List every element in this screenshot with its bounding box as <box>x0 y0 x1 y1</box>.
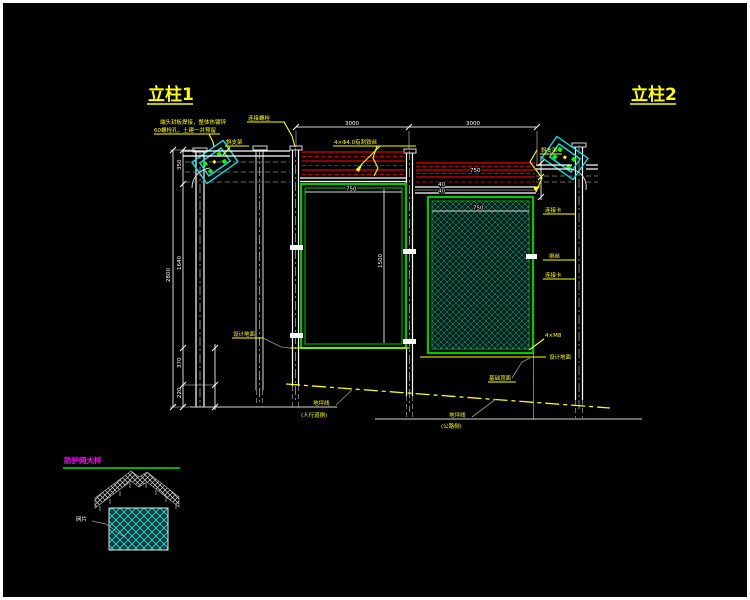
cad-canvas: 立柱1 立柱2 3000 3000 2800 350 1640 370 220 <box>0 0 750 600</box>
foundation-top-label: 基础顶面 <box>489 374 512 382</box>
install-note-line2: 60螺栓孔，土建一并预留 <box>154 126 216 134</box>
tie-callout-2: 绑丝 <box>549 252 561 260</box>
bolt-callout-label: 连接螺栓 <box>248 114 271 122</box>
dim-panel-w-left: 750 <box>346 187 357 193</box>
dim-span-left: 3000 <box>345 121 359 127</box>
dim-panel-h-left: 1500 <box>378 254 384 268</box>
design-ground-label-left: 设计地面 <box>233 330 256 338</box>
title-column-1: 立柱1 <box>148 84 194 105</box>
dim-seg-1: 350 <box>177 159 183 170</box>
barbed-wire-label: 4×Φ4.0有刺铁丝 <box>334 138 378 146</box>
title-column-2: 立柱2 <box>631 84 677 105</box>
tie-callout-4: 4×M8 <box>545 333 562 339</box>
mesh-sample-label: 网片 <box>76 515 87 523</box>
ground-side-label-left: (人行道侧) <box>301 411 327 419</box>
dim-rail-c: 40 <box>438 189 445 195</box>
dim-panel-w-right: 750 <box>473 206 484 212</box>
fence-detail-drawing: 立柱1 立柱2 3000 3000 2800 350 1640 370 220 <box>0 0 750 600</box>
ground-line-label-right: 地坪线 <box>449 411 466 419</box>
design-ground-label-right: 设计地面 <box>549 353 572 361</box>
dim-seg-4: 220 <box>177 387 183 398</box>
right-bracket-label: 斜支架 <box>541 146 558 154</box>
left-bracket-label: 斜支架 <box>226 138 243 146</box>
dim-rail-a: 750 <box>470 168 481 174</box>
dim-seg-2: 1640 <box>177 256 183 270</box>
install-note-line1: 端头封板焊接，整体热镀锌 <box>160 118 227 126</box>
ground-side-label-right: (公路侧) <box>441 422 462 430</box>
dim-span-right: 3000 <box>466 121 480 127</box>
dim-rail-b: 40 <box>438 182 445 188</box>
dim-total-height: 2800 <box>166 268 172 282</box>
tie-callout-1: 连接卡 <box>545 206 562 214</box>
ground-line-label-left: 地坪线 <box>313 399 330 407</box>
dim-seg-3: 370 <box>177 357 183 368</box>
detail-title: 防护网大样 <box>64 455 102 465</box>
tie-callout-3: 连接卡 <box>545 271 562 279</box>
mesh-sample <box>109 508 168 550</box>
